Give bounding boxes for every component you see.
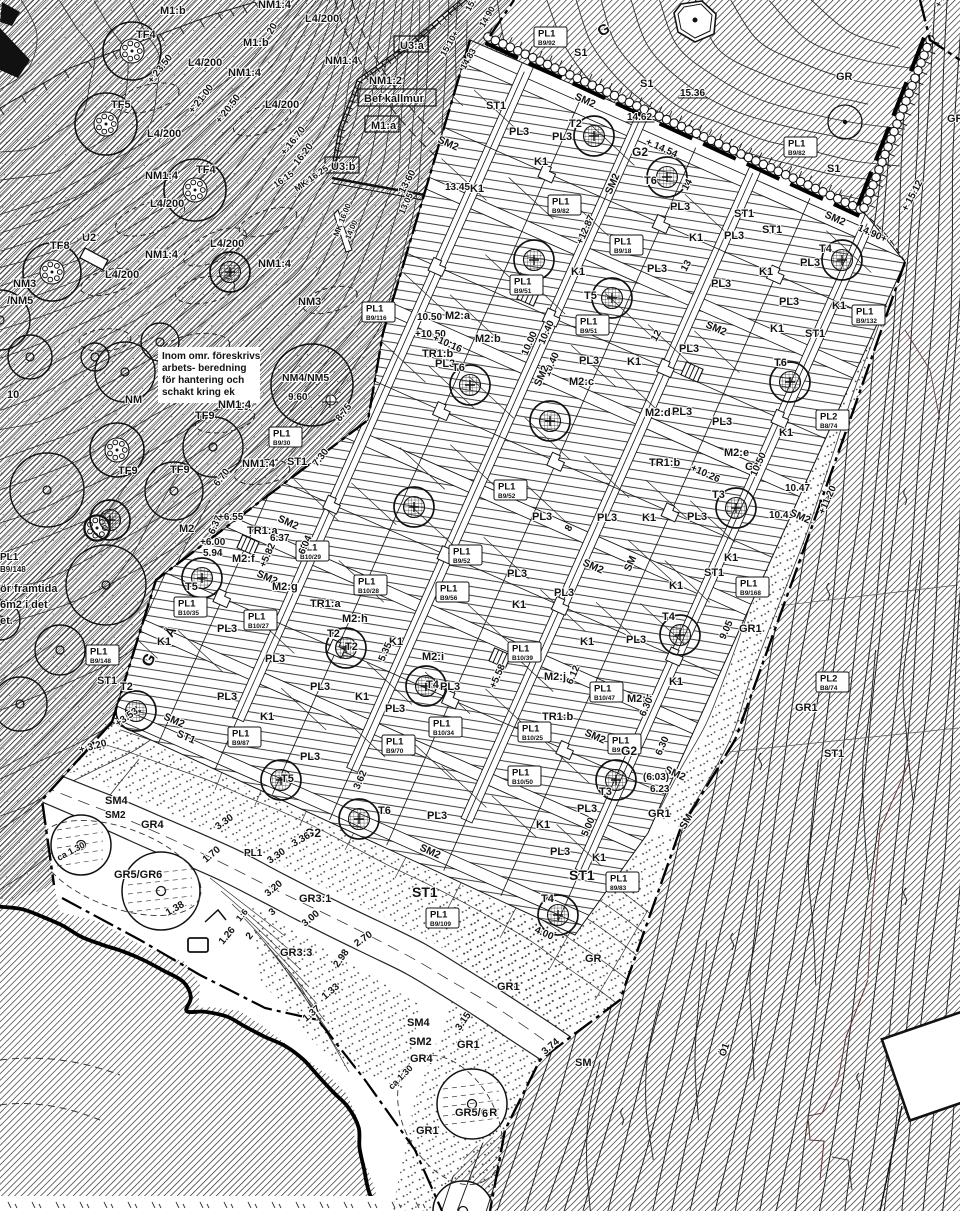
svg-text:NM1:4: NM1:4 <box>242 458 276 470</box>
svg-text:B10/39: B10/39 <box>512 655 533 662</box>
svg-text:M2:b: M2:b <box>475 333 501 345</box>
svg-text:M1:b: M1:b <box>243 37 269 49</box>
svg-text:PL1: PL1 <box>580 317 598 328</box>
svg-text:PL1: PL1 <box>366 304 384 315</box>
svg-text:NM1:4: NM1:4 <box>325 55 359 67</box>
svg-text:B9/82: B9/82 <box>552 208 570 215</box>
svg-text:PL3: PL3 <box>712 416 732 428</box>
svg-text:T6: T6 <box>452 362 465 374</box>
svg-text:B9/168: B9/168 <box>740 590 761 597</box>
svg-text:PL1: PL1 <box>740 579 758 590</box>
svg-text:PL1: PL1 <box>273 429 291 440</box>
svg-text:SM2: SM2 <box>105 810 126 821</box>
svg-text:L4/200: L4/200 <box>150 198 184 210</box>
svg-text:M2:c: M2:c <box>569 376 594 388</box>
svg-text:GR3:1: GR3:1 <box>299 893 331 905</box>
svg-text:M2: M2 <box>179 523 194 535</box>
svg-text:ST1: ST1 <box>805 328 825 340</box>
svg-text:K1: K1 <box>724 552 738 564</box>
svg-text:T5: T5 <box>185 581 198 593</box>
svg-text:PL1: PL1 <box>514 277 532 288</box>
svg-text:PL3: PL3 <box>507 568 527 580</box>
svg-text:TR1:b: TR1:b <box>542 711 573 723</box>
svg-text:K1: K1 <box>832 300 846 312</box>
svg-text:U3:b: U3:b <box>331 161 356 173</box>
svg-text:B10/25: B10/25 <box>522 735 543 742</box>
svg-text:L4/200: L4/200 <box>265 99 299 111</box>
svg-text:B9/92: B9/92 <box>538 40 556 47</box>
svg-text:B10/27: B10/27 <box>248 623 269 630</box>
svg-text:PL1: PL1 <box>232 729 250 740</box>
svg-text:13.45: 13.45 <box>445 182 470 193</box>
svg-text:NM1:4: NM1:4 <box>145 170 179 182</box>
svg-text:M2:g: M2:g <box>272 581 298 593</box>
svg-text:K1: K1 <box>571 266 585 278</box>
svg-text:SM: SM <box>575 1057 592 1069</box>
svg-text:SM2: SM2 <box>409 1036 432 1048</box>
svg-text:PL1: PL1 <box>856 307 874 318</box>
svg-text:L4/200: L4/200 <box>147 128 181 140</box>
svg-text:PL3: PL3 <box>265 653 285 665</box>
svg-text:S1: S1 <box>574 47 587 59</box>
svg-text:K1: K1 <box>592 852 606 864</box>
svg-text:B9/109: B9/109 <box>430 921 451 928</box>
svg-text:PL1: PL1 <box>522 724 540 735</box>
svg-text:M2:j: M2:j <box>544 671 566 683</box>
svg-text:PL1: PL1 <box>244 848 263 859</box>
svg-text:PL3: PL3 <box>779 296 799 308</box>
svg-text:B9/87: B9/87 <box>232 740 250 747</box>
svg-text:SM4: SM4 <box>407 1017 431 1029</box>
svg-text:M2:h: M2:h <box>342 613 368 625</box>
svg-text:PL3: PL3 <box>711 278 731 290</box>
svg-text:G2: G2 <box>621 744 637 758</box>
svg-text:PL1: PL1 <box>614 237 632 248</box>
svg-text:TF9: TF9 <box>195 410 215 422</box>
svg-text:TF8: TF8 <box>50 240 70 252</box>
svg-text:M1:a: M1:a <box>371 120 397 132</box>
svg-text:6.37: 6.37 <box>270 533 290 544</box>
svg-text:B9/51: B9/51 <box>514 288 532 295</box>
svg-text:M1:b: M1:b <box>160 5 186 17</box>
svg-text:K1: K1 <box>157 636 171 648</box>
svg-text:M2:a: M2:a <box>445 310 471 322</box>
svg-text:NM3: NM3 <box>13 278 36 290</box>
svg-text:L4/200: L4/200 <box>188 57 222 69</box>
svg-text:TF4: TF4 <box>196 164 216 176</box>
svg-text:T3: T3 <box>712 489 725 501</box>
svg-text:PL3: PL3 <box>597 512 617 524</box>
svg-text:GR5/GR6: GR5/GR6 <box>114 869 162 881</box>
svg-text:PL1: PL1 <box>358 577 376 588</box>
svg-text:ST1: ST1 <box>486 100 506 112</box>
svg-text:TR1:b: TR1:b <box>649 457 680 469</box>
svg-text:89/83: 89/83 <box>610 885 627 892</box>
svg-text:B10/35: B10/35 <box>178 610 199 617</box>
svg-text:T4: T4 <box>541 893 555 905</box>
svg-text:B9/30: B9/30 <box>273 440 291 447</box>
svg-text:PL3: PL3 <box>385 703 405 715</box>
svg-text:GR1: GR1 <box>739 623 762 635</box>
svg-text:15.36: 15.36 <box>680 88 705 99</box>
svg-text:T5: T5 <box>281 773 294 785</box>
svg-text:NM1:4: NM1:4 <box>218 399 252 411</box>
svg-text:Bef kallmur: Bef kallmur <box>364 93 425 105</box>
svg-text:PL1: PL1 <box>512 644 530 655</box>
svg-text:ST1: ST1 <box>734 208 754 220</box>
svg-text:PL3: PL3 <box>217 623 237 635</box>
svg-text:PL1: PL1 <box>594 684 612 695</box>
svg-text:PL1: PL1 <box>430 910 448 921</box>
svg-text:PL3: PL3 <box>577 803 597 815</box>
svg-text:K1: K1 <box>536 819 550 831</box>
svg-text:NM3: NM3 <box>298 296 321 308</box>
svg-text:(6.03): (6.03) <box>643 772 669 783</box>
svg-text:PL3: PL3 <box>679 343 699 355</box>
svg-text:10.50: 10.50 <box>417 312 442 323</box>
svg-text:6: 6 <box>482 1108 488 1120</box>
svg-text:14.62: 14.62 <box>627 112 652 123</box>
svg-text:B9/132: B9/132 <box>856 318 877 325</box>
svg-text:GR4: GR4 <box>141 819 165 831</box>
svg-text:L4/200: L4/200 <box>210 238 244 250</box>
svg-text:TF4: TF4 <box>136 29 156 41</box>
svg-text:T6: T6 <box>378 805 391 817</box>
svg-text:9.60: 9.60 <box>288 392 308 403</box>
svg-text:M2:d: M2:d <box>645 407 671 419</box>
svg-text:/NM5: /NM5 <box>7 295 33 307</box>
svg-text:PL3: PL3 <box>440 681 460 693</box>
svg-text:PL1: PL1 <box>248 612 266 623</box>
svg-text:PL3: PL3 <box>427 810 447 822</box>
svg-text:K1: K1 <box>779 427 793 439</box>
svg-text:10: 10 <box>7 389 19 401</box>
svg-text:GR1: GR1 <box>457 1039 480 1051</box>
svg-text:GR3:3: GR3:3 <box>280 947 312 959</box>
svg-text:schakt kring ek: schakt kring ek <box>162 387 235 398</box>
svg-text:GR1: GR1 <box>416 1125 439 1137</box>
svg-text:B9/52: B9/52 <box>453 558 471 565</box>
svg-text:PL2: PL2 <box>820 412 837 423</box>
svg-text:PL1: PL1 <box>0 552 19 563</box>
svg-text:PL3: PL3 <box>670 201 690 213</box>
svg-text:PL1: PL1 <box>552 197 570 208</box>
svg-text:PL3: PL3 <box>310 681 330 693</box>
svg-text:GR4: GR4 <box>410 1053 434 1065</box>
svg-text:GR: GR <box>585 953 602 965</box>
svg-text:PL1: PL1 <box>610 874 628 885</box>
svg-text:B9/148: B9/148 <box>0 565 26 574</box>
svg-text:GR: GR <box>836 71 853 83</box>
svg-text:PL1: PL1 <box>178 599 196 610</box>
svg-text:NM1:2: NM1:2 <box>369 75 402 87</box>
svg-text:T6: T6 <box>644 175 657 187</box>
svg-text:PL3: PL3 <box>647 263 667 275</box>
svg-text:PL3: PL3 <box>672 406 692 418</box>
svg-text:ST1: ST1 <box>412 884 438 900</box>
svg-text:T6: T6 <box>774 357 787 369</box>
svg-text:M2:i: M2:i <box>422 651 444 663</box>
svg-text:NM4/NM5: NM4/NM5 <box>282 372 329 384</box>
svg-text:PL1: PL1 <box>440 584 458 595</box>
svg-text:ST1: ST1 <box>569 867 595 883</box>
svg-text:B9/116: B9/116 <box>366 315 387 322</box>
svg-text:ST1: ST1 <box>287 456 307 468</box>
svg-text:B8/74: B8/74 <box>820 423 838 430</box>
svg-text:K1: K1 <box>669 676 683 688</box>
svg-text:PL2: PL2 <box>820 674 837 685</box>
svg-text:S1: S1 <box>640 78 653 90</box>
svg-text:ör framtida: ör framtida <box>0 583 58 595</box>
svg-text:T4: T4 <box>426 679 440 691</box>
svg-text:PL3: PL3 <box>552 131 572 143</box>
svg-text:GR1: GR1 <box>497 981 520 993</box>
svg-text:PL3: PL3 <box>579 355 599 367</box>
svg-text:K1: K1 <box>580 636 594 648</box>
svg-text:Inom omr. föreskrivs: Inom omr. föreskrivs <box>162 351 261 362</box>
svg-text:B9/51: B9/51 <box>580 328 598 335</box>
svg-text:T2: T2 <box>327 628 340 640</box>
svg-text:NM: NM <box>125 394 142 406</box>
svg-text:B9/52: B9/52 <box>498 493 516 500</box>
svg-text:K1: K1 <box>689 232 703 244</box>
svg-text:PL1: PL1 <box>788 139 806 150</box>
svg-text:ST1: ST1 <box>762 224 782 236</box>
svg-text:B9/18: B9/18 <box>614 248 632 255</box>
svg-text:PL3: PL3 <box>300 751 320 763</box>
svg-text:K1: K1 <box>627 356 641 368</box>
svg-text:K1: K1 <box>669 580 683 592</box>
svg-text:B9/82: B9/82 <box>788 150 806 157</box>
svg-text:PL3: PL3 <box>509 126 529 138</box>
svg-text:PL1: PL1 <box>498 482 516 493</box>
svg-text:arbets- beredning: arbets- beredning <box>162 363 246 374</box>
svg-text:K1: K1 <box>534 156 548 168</box>
svg-text:NM1:4: NM1:4 <box>228 67 262 79</box>
svg-text:B9/56: B9/56 <box>440 595 458 602</box>
svg-text:K1: K1 <box>759 266 773 278</box>
svg-text:T2: T2 <box>120 681 133 693</box>
svg-text:T4: T4 <box>819 243 833 255</box>
svg-text:B10/47: B10/47 <box>594 695 615 702</box>
svg-text:K1: K1 <box>642 512 656 524</box>
svg-text:PL1: PL1 <box>538 29 556 40</box>
svg-text:PL1: PL1 <box>90 647 108 658</box>
svg-text:K1: K1 <box>355 691 369 703</box>
svg-text:B9/148: B9/148 <box>90 658 111 665</box>
svg-text:PL3: PL3 <box>687 511 707 523</box>
svg-text:10.47: 10.47 <box>785 483 810 494</box>
svg-text:K1: K1 <box>470 183 484 195</box>
svg-text:GR5/GR: GR5/GR <box>455 1107 497 1119</box>
svg-text:NM1:4: NM1:4 <box>145 249 179 261</box>
svg-text:PL3: PL3 <box>217 691 237 703</box>
svg-text:K1: K1 <box>770 323 784 335</box>
svg-text:S1: S1 <box>827 163 840 175</box>
svg-text:T2: T2 <box>345 641 358 653</box>
svg-text:T2: T2 <box>569 118 582 130</box>
svg-text:SM4: SM4 <box>105 795 129 807</box>
svg-text:PL3: PL3 <box>554 587 574 599</box>
svg-text:B10/28: B10/28 <box>358 588 379 595</box>
svg-text:TF5: TF5 <box>111 99 131 111</box>
svg-text:PL3: PL3 <box>550 846 570 858</box>
svg-text:T5: T5 <box>584 290 597 302</box>
svg-text:B10/34: B10/34 <box>433 730 454 737</box>
svg-text:T4: T4 <box>662 611 676 623</box>
svg-text:NM1:4: NM1:4 <box>258 258 292 270</box>
svg-text:B8/74: B8/74 <box>820 685 838 692</box>
svg-text:6m2 i det: 6m2 i det <box>0 599 48 611</box>
svg-text:TF9: TF9 <box>118 465 138 477</box>
svg-text:GR1: GR1 <box>795 702 818 714</box>
svg-text:U2: U2 <box>82 232 96 244</box>
svg-text:M2:f: M2:f <box>232 553 255 565</box>
svg-text:ST1: ST1 <box>97 675 117 687</box>
svg-text:GR1: GR1 <box>947 113 960 125</box>
svg-text:ST1: ST1 <box>704 567 724 579</box>
svg-text:PL3: PL3 <box>626 634 646 646</box>
svg-text:PL1: PL1 <box>512 768 530 779</box>
svg-text:PL1: PL1 <box>433 719 451 730</box>
svg-text:ST1: ST1 <box>824 748 844 760</box>
svg-text:K1: K1 <box>512 599 526 611</box>
svg-text:et.: et. <box>0 615 13 627</box>
svg-text:PL3: PL3 <box>800 257 820 269</box>
svg-text:K1: K1 <box>260 711 274 723</box>
svg-text:PL1: PL1 <box>386 737 404 748</box>
svg-text:B10/50: B10/50 <box>512 779 533 786</box>
svg-text:5.94: 5.94 <box>203 548 223 559</box>
svg-text:+6.00: +6.00 <box>200 537 226 548</box>
svg-text:M2:e: M2:e <box>724 447 749 459</box>
svg-text:TR1:a: TR1:a <box>310 598 341 610</box>
svg-text:NM1:4: NM1:4 <box>258 0 292 11</box>
svg-text:PL3: PL3 <box>724 230 744 242</box>
svg-text:GR1: GR1 <box>648 808 671 820</box>
svg-text:PL3: PL3 <box>532 511 552 523</box>
svg-text:L4/200: L4/200 <box>305 13 339 25</box>
svg-text:6.23: 6.23 <box>650 784 670 795</box>
svg-text:PL1: PL1 <box>453 547 471 558</box>
svg-text:för hantering och: för hantering och <box>162 375 244 386</box>
svg-text:L4/200: L4/200 <box>105 269 139 281</box>
svg-text:T3: T3 <box>599 786 612 798</box>
svg-text:B9/70: B9/70 <box>386 748 404 755</box>
svg-text:U3:a: U3:a <box>400 40 425 52</box>
svg-text:TF9: TF9 <box>170 464 190 476</box>
